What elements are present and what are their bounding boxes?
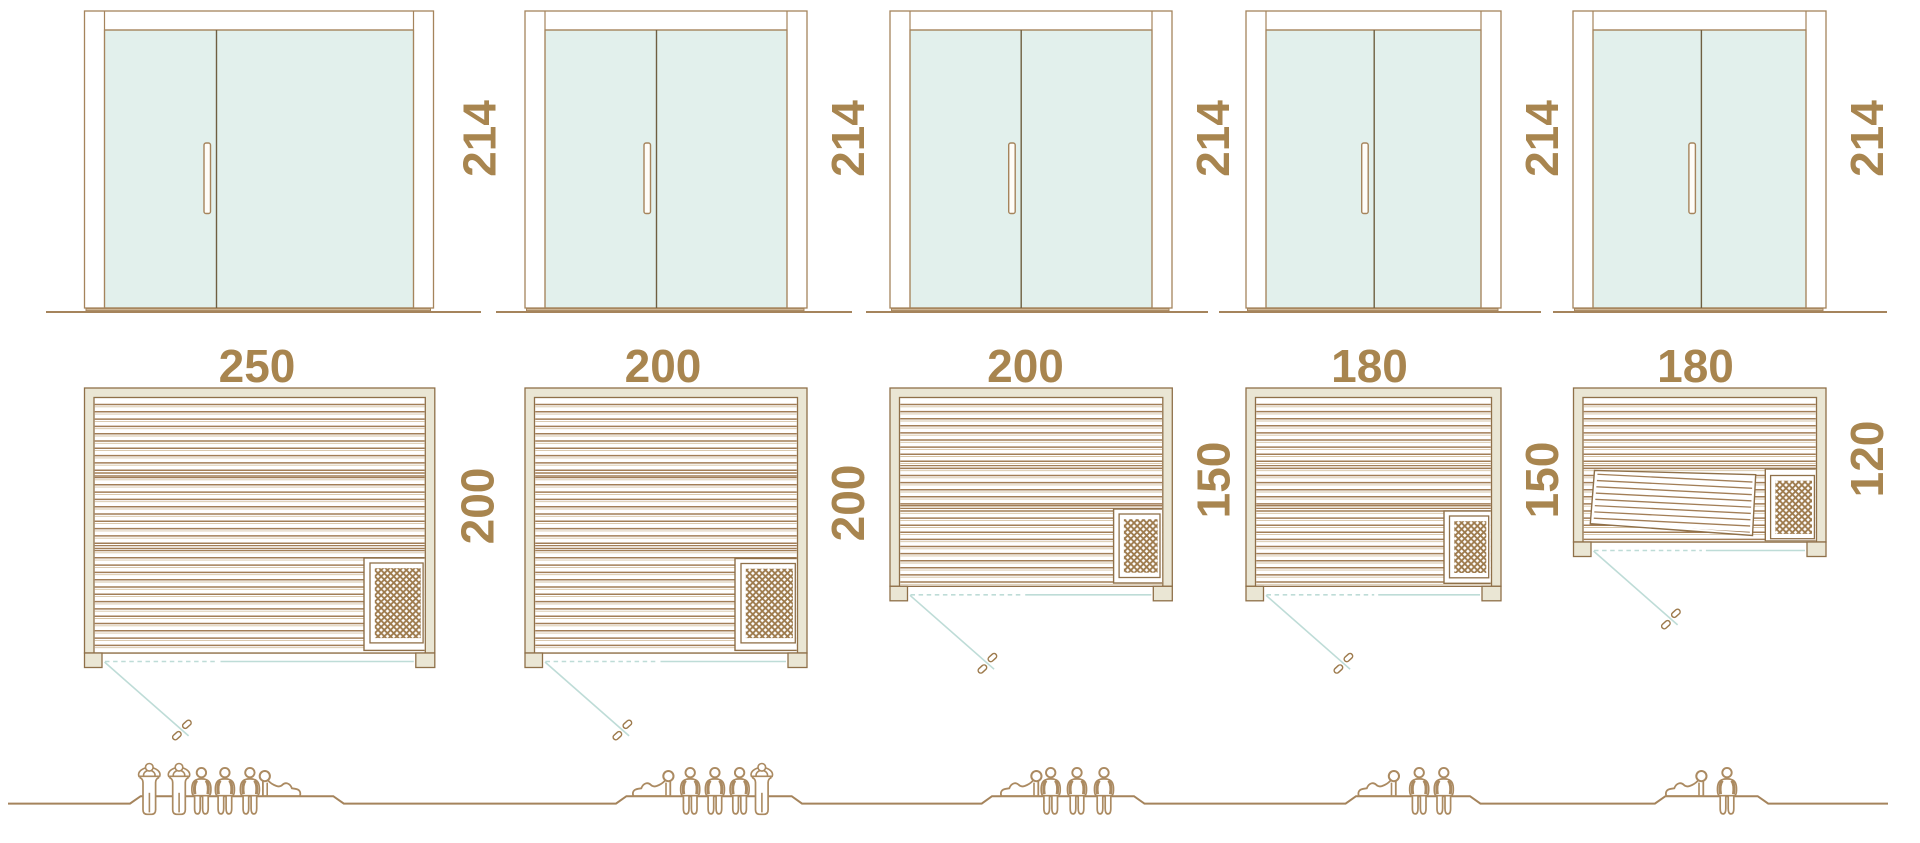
svg-text:200: 200 [451, 468, 503, 545]
svg-text:200: 200 [987, 340, 1064, 392]
svg-text:214: 214 [454, 100, 506, 177]
svg-text:180: 180 [1657, 340, 1734, 392]
svg-text:214: 214 [1516, 100, 1568, 177]
svg-text:120: 120 [1841, 421, 1893, 498]
svg-text:214: 214 [1841, 100, 1893, 177]
svg-text:214: 214 [1187, 100, 1239, 177]
svg-text:200: 200 [625, 340, 702, 392]
svg-text:150: 150 [1516, 442, 1568, 519]
svg-text:150: 150 [1188, 442, 1240, 519]
svg-text:214: 214 [822, 100, 874, 177]
svg-text:200: 200 [822, 465, 874, 542]
svg-text:180: 180 [1331, 340, 1408, 392]
svg-text:250: 250 [219, 340, 296, 392]
